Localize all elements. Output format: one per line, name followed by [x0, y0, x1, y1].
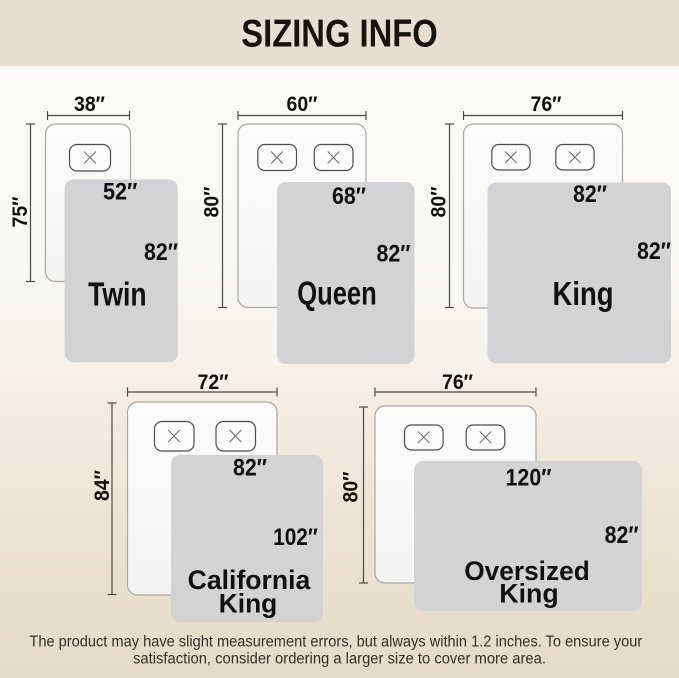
svg-text:82″: 82″: [573, 181, 607, 208]
svg-text:72″: 72″: [198, 371, 229, 394]
svg-text:satisfaction, consider orderin: satisfaction, consider ordering a larger…: [133, 651, 546, 668]
svg-text:The product may have slight me: The product may have slight measurement …: [29, 634, 642, 651]
svg-text:King: King: [499, 579, 558, 609]
svg-text:80″: 80″: [340, 472, 363, 503]
svg-text:68″: 68″: [332, 183, 366, 210]
svg-text:82″: 82″: [605, 522, 639, 549]
svg-text:60″: 60″: [287, 93, 318, 116]
svg-text:120″: 120″: [506, 465, 552, 492]
svg-text:82″: 82″: [637, 238, 671, 265]
svg-text:80″: 80″: [201, 187, 224, 218]
svg-text:76″: 76″: [531, 93, 562, 116]
svg-text:Queen: Queen: [297, 276, 377, 313]
svg-text:82″: 82″: [233, 455, 267, 482]
svg-text:82″: 82″: [377, 241, 411, 268]
svg-text:76″: 76″: [442, 371, 473, 394]
svg-text:82″: 82″: [144, 239, 178, 266]
svg-text:38″: 38″: [74, 93, 105, 116]
svg-text:80″: 80″: [428, 187, 451, 218]
svg-text:52″: 52″: [103, 179, 138, 206]
svg-text:84″: 84″: [91, 470, 114, 501]
svg-text:King: King: [553, 276, 614, 313]
svg-text:Twin: Twin: [88, 276, 147, 313]
svg-text:SIZING INFO: SIZING INFO: [241, 13, 438, 56]
svg-text:102″: 102″: [273, 524, 318, 551]
svg-text:King: King: [219, 589, 278, 619]
svg-text:75″: 75″: [9, 197, 32, 228]
